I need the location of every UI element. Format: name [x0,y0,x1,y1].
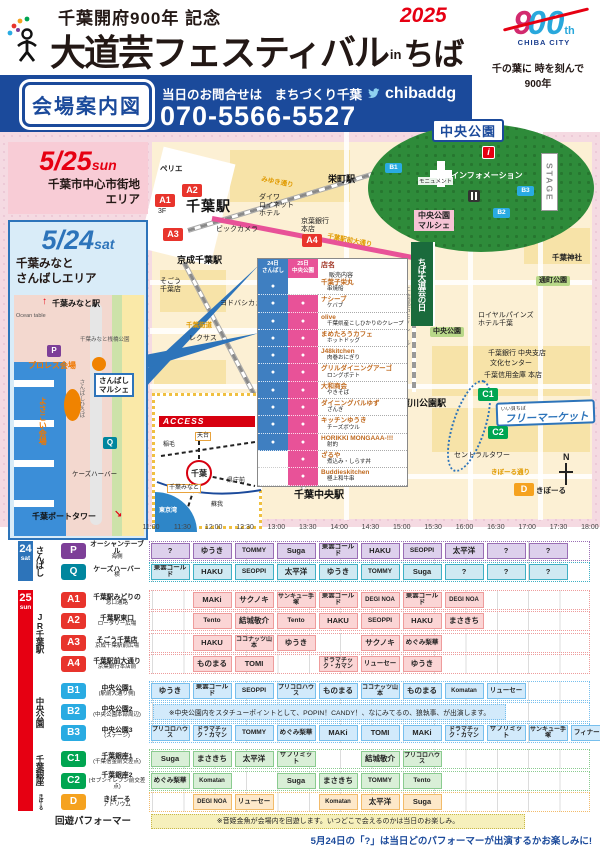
central-tower-label: セントラルタワー [454,452,510,460]
performer-slot: SEOPPI [235,683,274,699]
location-badge-A1: A1 [61,592,86,608]
lexus-label: レクサス [189,335,217,343]
performer-slot: ゆうき [193,543,232,559]
schedule-footnote: 5月24日の「?」は当日どのパフォーマーが出演するかお楽しみに! [280,833,592,847]
day-number: 25 [18,592,33,604]
performer-slot: Suga [151,751,190,767]
trees-strip [112,295,122,536]
performer-slot: Tento [277,613,316,629]
vendor-name: キッチンゆうきチーズボウル [318,416,407,433]
location-badge-Q: Q [61,564,86,580]
pier-shape [14,380,54,387]
stage-box: STAGE [541,153,558,211]
vendor-row: ●●ナシーブケバブ [258,295,407,312]
chiba-900th-logo: 900th CHIBA CITY [492,4,596,47]
area-group-label: 千葉銀座 [33,749,47,790]
location-name-sub: 京葉銀行本店前 [98,665,137,671]
performer-slot: TOMI [361,725,400,741]
location-name-sub: (セブンイレブン前交差点) [87,779,147,791]
area-group-label: 中央公園 [33,681,47,742]
vendor-shop-name: 大和商会 [321,383,407,390]
pier-shape [14,500,54,507]
location-badge-A2: A2 [61,613,86,629]
schedule-timeline: 11:0011:3012:0012:3013:0013:3014:0014:30… [15,524,597,538]
vendor-sat-cell: ● [258,295,288,312]
performer-slot: Suga [403,564,442,580]
twitter-handle: chibaddg [385,85,456,103]
chuo-park-small-label: 中央公園 [430,327,464,337]
vendor-sun-cell: ● [288,313,318,330]
sogo-label: そごう 千葉店 [160,278,181,294]
torichou-park-label: 通町公園 [536,276,570,286]
vendor-sat-cell: ● [258,347,288,364]
time-tick: 16:00 [452,524,478,531]
performer-slot: 結城敬介 [235,613,274,629]
info-icon: i [482,146,495,159]
point-c1-badge: C1 [478,388,498,401]
location-name-sub: (ステージ) [104,734,130,740]
time-tick: 16:30 [483,524,509,531]
culture-center-label: 文化センター [490,360,532,368]
pier-shape [14,420,54,427]
day-number: 24 [18,543,33,555]
twitter-icon [366,87,381,100]
kencho-mae-label: 県庁前 [227,478,245,485]
vendor-sat-cell: ● [258,313,288,330]
performer-slot: ものまる [403,683,442,699]
access-inset-map: ACCESS 稲毛天台千葉県庁前千葉みなと蘇我東京湾 [152,393,262,529]
saturday-area-box: 5/24sat 千葉みなと さんばしエリア ↑千葉みなと駅Ocean table… [8,220,148,540]
performer-slot: 東雲ゴールド [403,592,442,608]
title-in: in [390,47,402,62]
location-name: 中央公園1(駅前大通り側) [87,681,147,701]
vendor-sun-cell: ● [288,399,318,416]
vendor-row: ●●HORIKKI MONGAAA-!!!射的 [258,434,407,451]
vendor-name: 大和商会やきそば [318,382,407,399]
vendor-row: ●Buddieskitchen極上和牛串 [258,468,407,485]
vendor-name: 千葉子栄丸串焼船 [318,278,407,295]
performer-slot: リューセー [235,794,274,810]
time-tick: 11:30 [169,524,195,531]
venue-map-title: 会場案内図 [22,82,152,127]
chiba-chuo-station-label: 千葉中央駅 [294,490,344,502]
sanbashi-marche-label: さんばし マルシェ [94,373,134,397]
vendor-name: J48kitchen肉巻おにぎり [318,347,407,364]
point-a4-badge: A4 [302,234,322,247]
port-tower-label: 千葉ポートタワー [32,512,96,521]
location-badge-A3: A3 [61,635,86,651]
monument-label: モニュメント [418,177,453,185]
performer-slot: リューセー [487,683,526,699]
performer-slot: 東雲ゴールド [193,683,232,699]
performer-slot: SEOPPI [235,564,274,580]
wrestling-venue-dot [92,357,106,371]
performer-slot: Komatan [193,773,232,789]
information-label: インフォメーション [451,170,523,181]
statue-point-note: ※中央公園内をスタチューポイントとして、POPIN！CANDY！、なにみてるの、… [153,704,506,720]
performer-slot: 太平洋 [445,543,484,559]
ks-harbor-label: ケーズハーバー [72,471,117,478]
performer-slot: ? [487,543,526,559]
performer-slot: HAKU [361,543,400,559]
performer-slot: TOMI [235,656,274,672]
contact-bar: 会場案内図 当日のお問合せは まちづくり千葉 chibaddg 070-5566… [0,75,472,138]
location-name: 千葉銀座2(セブンイレブン前交差点) [87,771,147,791]
performer-slot: プリコロハウス [403,751,442,767]
vendor-name: ざるや煮込み・しらす丼 [318,451,407,468]
performer-slot: Suga [403,794,442,810]
location-badge-B1: B1 [61,683,86,699]
vendor-sun-cell: ● [288,416,318,433]
street-art-day-banner: ちば大道芸の日 [411,242,435,326]
vendor-item: ケバブ [321,303,407,309]
roaming-performer-note: ※音姫金魚が会場内を回遊します。いつどこで会えるのかは当日のお楽しみ。 [151,814,525,829]
vendor-sat-cell: ● [258,278,288,295]
area-group-label: きぼーる [33,792,47,811]
location-badge-C1: C1 [61,751,86,767]
sanbashi-hiroba-label: さんばしひろば [78,379,84,427]
performer-slot: MAKi [319,725,358,741]
performer-slot: ドラマチック・カマン [445,725,484,741]
time-tick: 13:30 [295,524,321,531]
down-right-arrow-icon: ↘ [114,509,122,521]
chibaminato-station-label: 千葉みなと駅 [52,299,100,308]
performer-slot: ? [529,543,568,559]
vendor-header-sun: 25日 中央公園 [288,259,318,278]
vendor-name: olive千葉県産こしひかりのクレープ [318,313,407,330]
location-name-sub: 京成千葉駅前広場 [95,644,139,650]
vendor-header-name: 店名 販売内容 [318,259,407,278]
performer-slot: プリコロハウス [151,725,190,741]
vendor-row: ●千葉子栄丸串焼船 [258,278,407,295]
area-group-label: さんばし [33,541,47,581]
performer-slot: 東雲ゴールド [151,564,190,580]
year-label: 2025 [400,4,447,28]
vendor-row: ●●olive千葉県産こしひかりのクレープ [258,313,407,330]
vendor-row: ●●大和商会やきそば [258,382,407,399]
performer-slot: TOMMY [235,725,274,741]
park-point-b1: B1 [385,163,402,173]
festival-title: 大道芸フェスティバルinちば [50,24,463,76]
performer-slot: サクノキ [361,635,400,651]
point-q-badge: Q [103,437,117,449]
time-tick: 14:00 [326,524,352,531]
performer-slot: 太平洋 [361,794,400,810]
location-badge-B2: B2 [61,704,86,720]
park-marche-label: 中央公園 マルシェ [414,210,454,231]
performer-slot: MAKi [193,592,232,608]
location-name: そごう千葉店京成千葉駅前広場 [87,633,147,653]
performer-slot: ドラマチック・カマン [193,725,232,741]
vendor-item: ざんぎ [321,407,407,413]
sunday-area-name: 千葉市中心市街地 エリア [16,178,140,208]
schedule-table: 回遊パフォーマー ※音姫金魚が会場内を回遊します。いつどこで会えるのかは当日のお… [15,541,597,833]
performer-slot: 東雲ゴールド [319,592,358,608]
vendor-row: ●●キッチンゆうきチーズボウル [258,416,407,433]
day-word: sun [18,604,33,611]
vendor-sat-cell: ● [258,399,288,416]
vendor-sun-cell: ● [288,382,318,399]
performer-slot: ココナッツ山本 [361,683,400,699]
chiba-bank-label: 千葉銀行 中央支店 [488,350,546,358]
vendor-name: HORIKKI MONGAAA-!!!射的 [318,434,407,451]
vendor-sat-cell: ● [258,364,288,381]
time-tick: 17:00 [514,524,540,531]
location-name: ケーズハーバー横 [87,562,147,582]
performer-slot: Tento [403,773,442,789]
performer-slot: TOMMY [235,543,274,559]
performer-slot: MAKi [403,725,442,741]
road-strip [122,295,144,536]
vendor-sat-cell [258,468,288,485]
performer-slot: ゆうき [403,656,442,672]
performer-slot: プリコロハウス [277,683,316,699]
performer-slot: ものまる [193,656,232,672]
performer-slot: Komatan [445,683,484,699]
up-arrow-icon: ↑ [42,296,47,308]
time-tick: 11:00 [138,524,164,531]
festival-poster: 千葉開府900年 記念 大道芸フェスティバルinちば 2025 900th CH… [0,0,600,851]
time-tick: 15:30 [420,524,446,531]
soga-label: 蘇我 [211,502,223,509]
tendai-label: 天台 [195,432,211,441]
vendor-item: 串焼船 [321,286,407,292]
flea-market-callout: いい貝ちば フリーマーケット [496,399,596,426]
vendor-shop-name: グリルダイニングアーゴ [321,365,407,372]
location-name: 千葉駅前大通り京葉銀行本店前 [87,654,147,674]
location-badge-C2: C2 [61,773,86,789]
performer-slot: DEGI NOA [193,794,232,810]
location-name: 中央公園2(中央公園本部周辺) [87,702,147,722]
vendor-item: やきそば [321,390,407,396]
time-tick: 17:30 [546,524,572,531]
performer-slot: SEOPPI [403,543,442,559]
performer-slot: DEGI NOA [361,592,400,608]
day-box-sat: 24sat [18,541,33,581]
area-group-label: JR千葉駅 [33,590,47,674]
location-name-sub: 横 [114,573,120,579]
sanbashi-park-label: 千葉みなと桟橋公園 [80,337,130,343]
performer-slot: SEOPPI [361,613,400,629]
point-a2-badge: A2 [182,184,202,197]
location-name-sub: アトリウム [103,803,131,809]
juggler-logo-icon [6,16,48,62]
qiball-label: きぼーる [536,487,566,496]
vendor-shop-name: HORIKKI MONGAAA-!!! [321,435,407,442]
performer-slot: HAKU [403,613,442,629]
saturday-date: 5/24sat [16,225,140,256]
performer-slot: 太平洋 [235,751,274,767]
point-c2-badge: C2 [488,426,508,439]
inage-label: 稲毛 [163,442,175,449]
park-point-b2: B2 [493,208,510,218]
performer-slot: めぐみ梨華 [151,773,190,789]
ocean-table-label: Ocean table [16,313,46,319]
location-name: きぼーるアトリウム [87,792,147,812]
location-name: 中央公園3(ステージ) [87,723,147,743]
location-badge-D: D [61,794,86,810]
vendor-table-header: 24日 さんばし 25日 中央公園 店名 販売内容 [258,259,407,278]
performer-slot: ? [487,564,526,580]
performer-slot: ココナッツ山本 [235,635,274,651]
saturday-area-name: 千葉みなと さんばしエリア [16,257,140,287]
vendor-shop-name: olive [321,314,407,321]
sakaecho-station-label: 栄町駅 [328,174,355,184]
sunday-area-box: 5/25sun 千葉市中心市街地 エリア [8,142,148,214]
minato-mini-map: ↑千葉みなと駅Ocean table千葉みなと桟橋公園Pプロレス会場さんばし マ… [14,295,144,536]
vendor-sun-cell: ● [288,468,318,485]
food-icon [468,190,480,202]
perie-label: ペリエ [160,165,183,174]
vendor-sun-cell: ● [288,295,318,312]
chibaminato-label: 千葉みなと [167,484,201,493]
location-name-sub: (中央公園本部周辺) [93,713,141,719]
vendor-header-sat: 24日 さんばし [258,259,288,278]
point-a3-badge: A3 [163,228,183,241]
a1-floor-label: 3F [158,208,166,216]
performer-slot: HAKU [193,635,232,651]
vendor-sun-cell: ● [288,330,318,347]
time-tick: 12:30 [232,524,258,531]
performer-slot: サクノキ [235,592,274,608]
vendor-shop-name: キッチンゆうき [321,417,407,424]
vendor-item: ロングポテト [321,373,407,379]
location-badge-B3: B3 [61,725,86,741]
keiyo-bank-label: 京葉銀行 本店 [301,218,329,234]
vendor-item: 肉巻おにぎり [321,355,407,361]
location-badge-P: P [61,543,86,559]
wrestling-venue-label: プロレス会場 [28,361,76,370]
location-name-sub: ロータリー広場 [98,622,137,628]
sunday-date: 5/25sun [16,146,140,177]
title-chiba: ちば [403,37,463,72]
performer-slot: Suga [277,543,316,559]
location-name: 千葉銀座1(千葉信金前交差点) [87,749,147,769]
performer-slot: ? [445,564,484,580]
performer-slot: まさきち [193,751,232,767]
roaming-performer-label: 回遊パフォーマー [39,814,147,829]
time-tick: 15:00 [389,524,415,531]
day-box-sun: 25sun [18,590,33,811]
location-name-sub: 海側 [111,555,122,561]
bic-camera-label: ビックカメラ [216,226,258,234]
time-tick: 13:00 [263,524,289,531]
performer-slot: サンキュー手塚 [529,725,568,741]
vendor-sun-cell [288,278,318,295]
location-name-sub: 窓口通路 [106,601,128,607]
performer-slot: フィナーレ [571,725,600,741]
shinkin-bank-label: 千葉信用金庫 本店 [484,372,542,380]
tokyo-bay-label: 東京湾 [159,508,177,515]
vendor-row: ●ざるや煮込み・しらす丼 [258,451,407,468]
phone-number: 070-5566-5527 [160,101,356,132]
logo-tagline: 千の葉に 時を刻んで 900年 [480,62,596,92]
day-word: sat [18,555,33,562]
vendor-item: 射的 [321,442,407,448]
vendor-item: 煮込み・しらす丼 [321,459,407,465]
vendor-name: まめたろうカフェホットドッグ [318,330,407,347]
time-tick: 18:00 [577,524,600,531]
location-name: オーシャンテーブル海側 [87,541,147,561]
vendor-name: ナシーブケバブ [318,295,407,312]
performer-slot: TOMMY [361,564,400,580]
performer-slot: まさきち [319,773,358,789]
location-name-sub: (駅前大通り側) [99,692,136,698]
vendor-sat-cell: ● [258,382,288,399]
vendor-row: ●●ダイニングバルゆずざんぎ [258,399,407,416]
vendor-sun-cell: ● [288,451,318,468]
vendor-sun-cell: ● [288,347,318,364]
performer-slot: めぐみ梨華 [403,635,442,651]
performer-slot: Tento [193,613,232,629]
performer-slot: Komatan [319,794,358,810]
performer-slot: Suga [277,773,316,789]
performer-slot: ゆうき [277,635,316,651]
time-tick: 12:00 [201,524,227,531]
vendor-row: ●●グリルダイニングアーゴロングポテト [258,364,407,381]
vendor-sat-cell: ● [258,330,288,347]
performer-slot: 太平洋 [277,564,316,580]
chiba-circle-label: 千葉 [186,460,212,486]
vendor-row: ●●J48kitchen肉巻おにぎり [258,347,407,364]
point-d-badge: D [514,483,534,496]
vendor-table: 24日 さんばし 25日 中央公園 店名 販売内容 ●千葉子栄丸串焼船●●ナシー… [257,258,408,487]
vendor-sat-cell: ● [258,416,288,433]
performer-slot: サプリミット [487,725,526,741]
performer-slot: ? [151,543,190,559]
north-compass-icon: N [563,452,570,485]
vendor-sun-cell: ● [288,364,318,381]
vendor-row: ●●まめたろうカフェホットドッグ [258,330,407,347]
vendor-item: ホットドッグ [321,338,407,344]
performer-slot: ドラマチック・カマン [319,656,358,672]
royal-pines-label: ロイヤルパインズ ホテル千葉 [478,312,534,328]
performer-slot: ものまる [319,683,358,699]
location-badge-A4: A4 [61,656,86,672]
daiwa-roynet-label: ダイワ ロイネット ホテル [259,194,294,218]
qiball-street-label: きぼーる通り [491,469,530,476]
location-name-sub: (千葉信金前交差点) [93,760,141,766]
vendor-item: 千葉県産こしひかりのクレープ [321,321,407,327]
vendor-shop-name: まめたろうカフェ [321,331,407,338]
performer-slot: ゆうき [151,683,190,699]
time-tick: 14:30 [357,524,383,531]
performer-slot: ? [529,564,568,580]
performer-slot: TOMMY [361,773,400,789]
vendor-name: グリルダイニングアーゴロングポテト [318,364,407,381]
performer-slot: 結城敬介 [361,751,400,767]
location-name: 千葉駅東口ロータリー広場 [87,611,147,631]
vendor-item: チーズボウル [321,425,407,431]
performer-slot: HAKU [193,564,232,580]
performer-slot: DEGI NOA [445,592,484,608]
performer-slot: リューセー [361,656,400,672]
performer-slot: HAKU [319,613,358,629]
logo-city-label: CHIBA CITY [492,38,596,47]
performer-slot: まさきち [445,613,484,629]
vendor-item: 極上和牛串 [321,476,407,482]
performer-slot: 東雲ゴールド [319,543,358,559]
main-map: 中央公園 STAGE モニュメント i インフォメーション 中央公園 マルシェ … [0,132,600,527]
performer-slot: サプリミット [277,751,316,767]
vendor-sat-cell: ● [258,434,288,451]
location-name: 千葉駅みどりの窓口通路 [87,590,147,610]
performer-slot: めぐみ梨華 [277,725,316,741]
vendor-sun-cell: ● [288,434,318,451]
performer-slot: サンキュー手塚 [277,592,316,608]
point-p-badge: P [47,345,61,357]
park-point-b3: B3 [517,186,534,196]
